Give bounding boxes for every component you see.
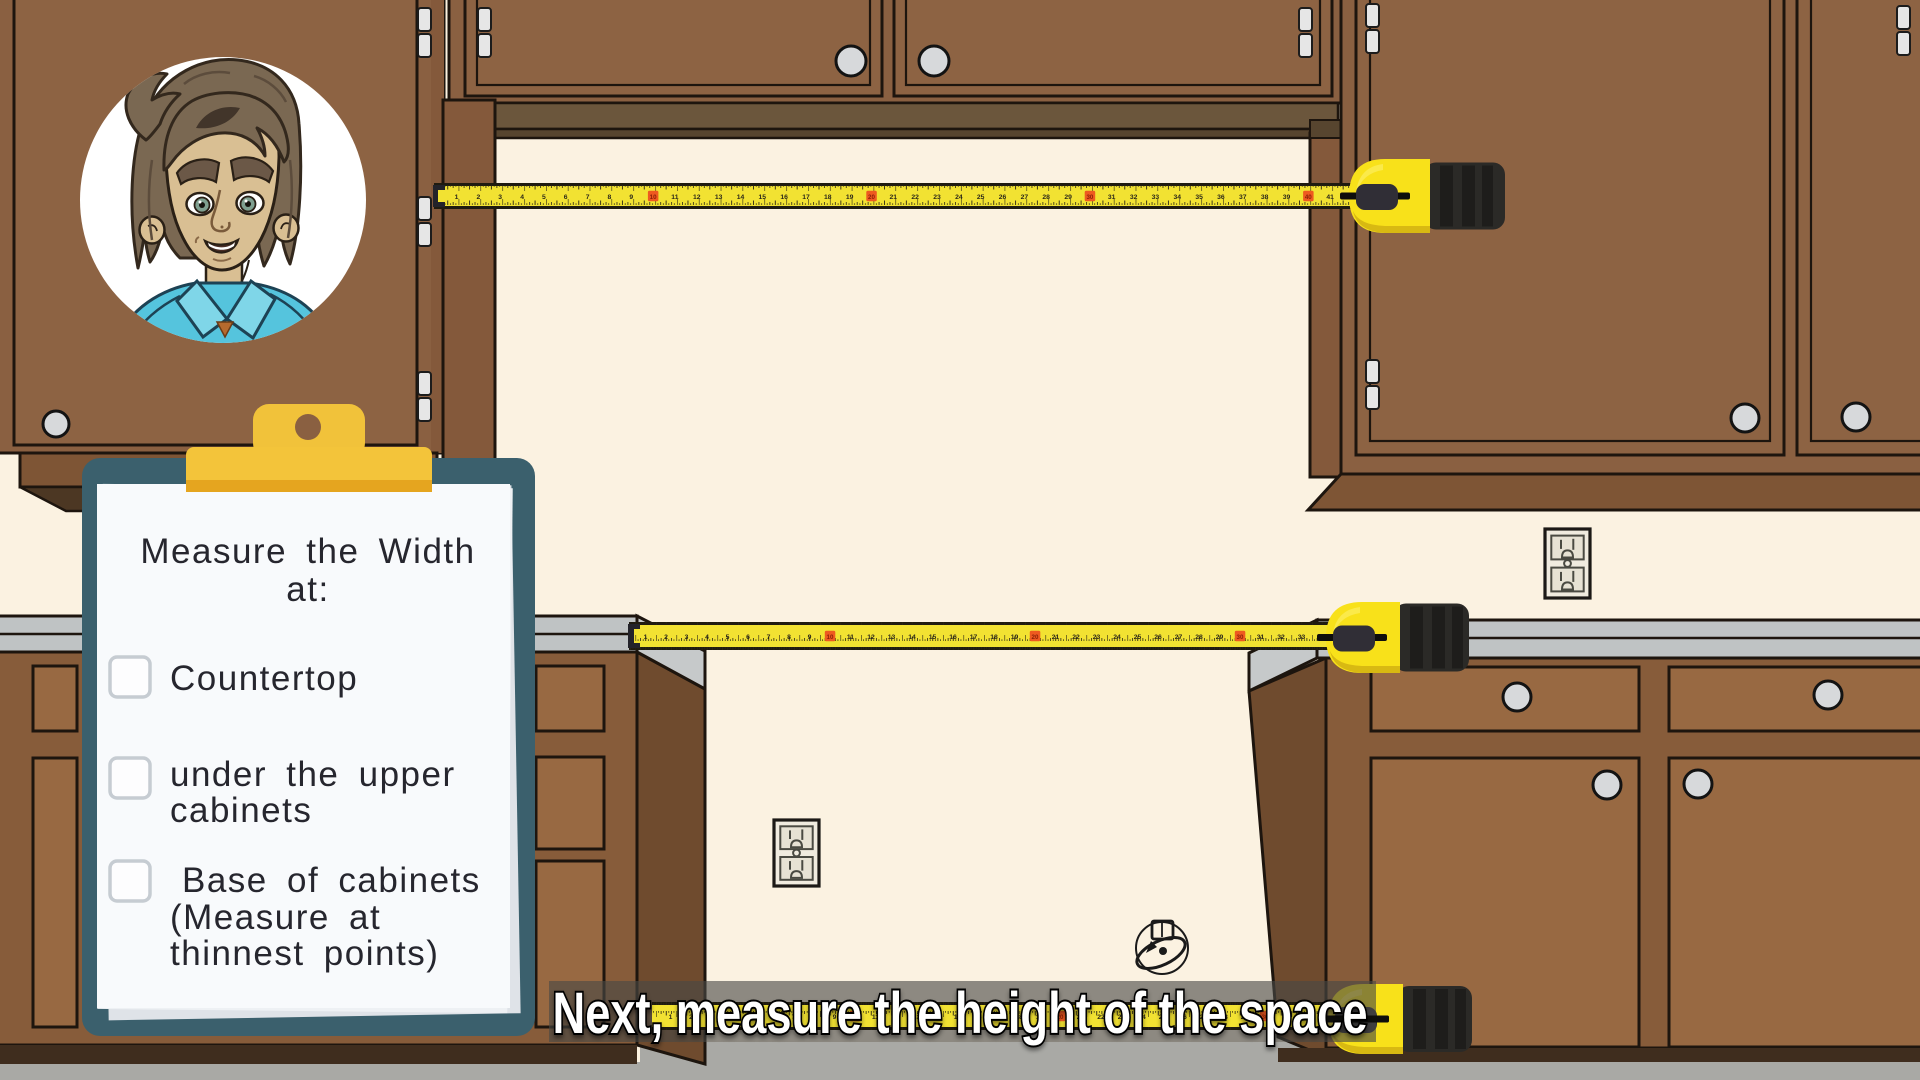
svg-text:29: 29 xyxy=(1064,194,1072,201)
svg-text:5: 5 xyxy=(726,634,730,641)
svg-text:23: 23 xyxy=(1093,634,1101,641)
svg-text:30: 30 xyxy=(1237,634,1244,641)
svg-text:15: 15 xyxy=(929,634,937,641)
svg-text:9: 9 xyxy=(629,194,633,201)
svg-text:1: 1 xyxy=(455,194,459,201)
svg-text:41: 41 xyxy=(1326,194,1334,201)
svg-text:33: 33 xyxy=(1152,194,1160,201)
svg-text:3: 3 xyxy=(685,634,689,641)
svg-text:35: 35 xyxy=(1195,194,1203,201)
svg-text:37: 37 xyxy=(1239,194,1247,201)
svg-text:36: 36 xyxy=(1217,194,1225,201)
svg-text:26: 26 xyxy=(999,194,1007,201)
svg-text:2: 2 xyxy=(664,634,668,641)
svg-text:19: 19 xyxy=(846,194,854,201)
svg-text:21: 21 xyxy=(1052,634,1060,641)
svg-text:21: 21 xyxy=(890,194,898,201)
svg-text:6: 6 xyxy=(564,194,568,201)
svg-text:24: 24 xyxy=(955,194,963,201)
svg-text:Countertop: Countertop xyxy=(170,659,358,698)
svg-text:28: 28 xyxy=(1042,194,1050,201)
svg-text:9: 9 xyxy=(808,634,812,641)
svg-text:32: 32 xyxy=(1130,194,1138,201)
svg-text:28: 28 xyxy=(1195,634,1203,641)
svg-text:33: 33 xyxy=(1298,634,1306,641)
svg-text:24: 24 xyxy=(1113,634,1121,641)
svg-text:16: 16 xyxy=(949,634,957,641)
svg-text:16: 16 xyxy=(780,194,788,201)
svg-text:at:: at: xyxy=(286,570,329,609)
svg-text:8: 8 xyxy=(787,634,791,641)
svg-text:6: 6 xyxy=(746,634,750,641)
svg-text:11: 11 xyxy=(671,194,678,201)
svg-text:23: 23 xyxy=(933,194,941,201)
svg-text:20: 20 xyxy=(1032,634,1039,641)
svg-text:38: 38 xyxy=(1261,194,1269,201)
svg-text:Base of cabinets: Base of cabinets xyxy=(182,861,481,900)
svg-text:10: 10 xyxy=(827,634,834,641)
svg-text:14: 14 xyxy=(908,634,916,641)
svg-text:39: 39 xyxy=(1283,194,1291,201)
svg-text:(Measure at: (Measure at xyxy=(170,898,381,937)
svg-text:4: 4 xyxy=(520,194,524,201)
svg-text:17: 17 xyxy=(970,634,978,641)
svg-text:4: 4 xyxy=(705,634,709,641)
svg-text:19: 19 xyxy=(1011,634,1019,641)
svg-text:14: 14 xyxy=(737,194,745,201)
svg-text:10: 10 xyxy=(650,194,657,201)
svg-text:8: 8 xyxy=(608,194,612,201)
svg-text:22: 22 xyxy=(911,194,919,201)
svg-text:34: 34 xyxy=(1174,194,1182,201)
svg-text:3: 3 xyxy=(498,194,502,201)
svg-text:18: 18 xyxy=(824,194,832,201)
svg-text:26: 26 xyxy=(1154,634,1162,641)
svg-text:cabinets: cabinets xyxy=(170,791,312,830)
svg-text:Next, measure the height of th: Next, measure the height of the space xyxy=(553,981,1368,1046)
svg-text:13: 13 xyxy=(715,194,723,201)
svg-text:30: 30 xyxy=(1086,194,1093,201)
svg-text:12: 12 xyxy=(867,634,875,641)
svg-text:17: 17 xyxy=(802,194,810,201)
svg-text:20: 20 xyxy=(868,194,875,201)
svg-text:31: 31 xyxy=(1257,634,1265,641)
svg-text:22: 22 xyxy=(1072,634,1080,641)
svg-text:thinnest points): thinnest points) xyxy=(170,934,439,973)
svg-text:27: 27 xyxy=(1175,634,1183,641)
svg-text:5: 5 xyxy=(542,194,546,201)
svg-text:18: 18 xyxy=(990,634,998,641)
svg-text:12: 12 xyxy=(693,194,701,201)
svg-text:13: 13 xyxy=(888,634,896,641)
svg-text:Measure the Width: Measure the Width xyxy=(140,532,475,571)
svg-text:under the upper: under the upper xyxy=(170,755,456,794)
svg-text:40: 40 xyxy=(1305,194,1312,201)
svg-text:1: 1 xyxy=(644,634,648,641)
svg-text:27: 27 xyxy=(1021,194,1029,201)
svg-text:25: 25 xyxy=(1134,634,1142,641)
svg-text:2: 2 xyxy=(477,194,481,201)
svg-text:15: 15 xyxy=(759,194,767,201)
svg-text:32: 32 xyxy=(1277,634,1285,641)
svg-text:7: 7 xyxy=(586,194,590,201)
svg-text:29: 29 xyxy=(1216,634,1224,641)
svg-text:31: 31 xyxy=(1108,194,1116,201)
svg-text:7: 7 xyxy=(767,634,771,641)
svg-text:11: 11 xyxy=(847,634,854,641)
svg-text:25: 25 xyxy=(977,194,985,201)
